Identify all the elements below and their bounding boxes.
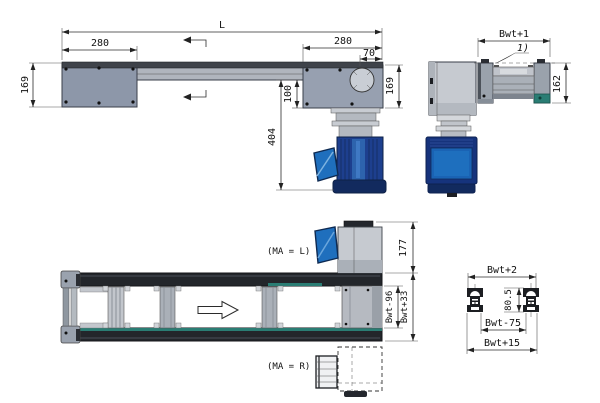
- terminal-box-ma-left: [315, 227, 338, 263]
- dim-motor-drop: 404: [267, 128, 278, 146]
- dim-motor-height-177: 177: [398, 239, 409, 257]
- tail-pulley: [103, 286, 130, 328]
- technical-drawing-page: L 280 280 70 169 169 100 404: [0, 0, 600, 403]
- belt-direction-arrow: [198, 302, 238, 319]
- left-rail-profile: [467, 284, 483, 312]
- note-ref-text: 1): [517, 43, 529, 54]
- cross-member-2: [256, 286, 283, 328]
- section-arrow-lower: [183, 90, 206, 101]
- conveyor-cross-section: [474, 59, 556, 103]
- belt-top-band: [62, 62, 383, 68]
- dim-overall-length: L: [219, 20, 225, 31]
- motor-end-cap: [333, 180, 386, 193]
- dim-profile-width-top: Bwt+2: [487, 265, 517, 276]
- cross-member-1: [154, 286, 181, 328]
- terminal-box-ma-right: [316, 356, 337, 388]
- cross-drive-shaft: [493, 65, 534, 99]
- motor-end: [426, 137, 477, 197]
- label-ma-left: (MA = L): [267, 247, 310, 257]
- dim-belt-width-plus1: Bwt+1: [499, 29, 529, 40]
- dim-width-inner: Bwt-96: [385, 291, 395, 324]
- motor-terminal-box: [314, 148, 338, 181]
- dim-height-right: 169: [385, 77, 396, 95]
- dim-162-height: 162: [552, 75, 563, 93]
- motor-unit-ma-right-dashed: [316, 347, 382, 397]
- top-view: (MA = L) (MA = R) 177: [61, 221, 418, 397]
- drive-block-top: [335, 286, 382, 328]
- conveyor-drawing: L 280 280 70 169 169 100 404: [0, 0, 600, 403]
- dim-profile-height: 80.5: [504, 289, 514, 311]
- end-view: 1) Bwt+1 162: [426, 29, 571, 197]
- dim-profile-width-outer: Bwt+15: [484, 338, 520, 349]
- gearbox-side: [331, 108, 380, 137]
- teal-stripe-top: [268, 283, 322, 286]
- drive-pulley: [350, 68, 374, 92]
- dim-width-outer: Bwt+33: [400, 291, 410, 324]
- section-arrow-upper: [183, 37, 206, 48]
- dim-profile-width-inner: Bwt-75: [485, 318, 521, 329]
- top-rail: [78, 273, 382, 286]
- teal-guide-block: [534, 94, 550, 103]
- right-rail-profile: [523, 283, 539, 317]
- dim-shaft-offset: 70: [363, 48, 375, 59]
- dim-tail-length: 280: [91, 38, 109, 49]
- dim-axis-drop: 100: [283, 85, 294, 103]
- gearbox-flange-stack: [436, 115, 471, 137]
- motor-side: [314, 137, 386, 193]
- motor-unit-ma-left: [315, 221, 382, 273]
- teal-stripe-bottom: [78, 328, 382, 331]
- note-reference: 1): [496, 43, 529, 63]
- cable-gland: [447, 193, 457, 197]
- label-ma-right: (MA = R): [267, 362, 310, 372]
- side-view: L 280 280 70 169 169 100 404: [20, 20, 403, 193]
- dim-drive-length: 280: [334, 36, 352, 47]
- dim-height-left: 169: [20, 76, 31, 94]
- tail-housing: [62, 63, 137, 107]
- gearbox-end: [429, 62, 476, 115]
- profile-section-view: Bwt+2 80.5 Bwt-75 Bwt+15: [467, 265, 539, 354]
